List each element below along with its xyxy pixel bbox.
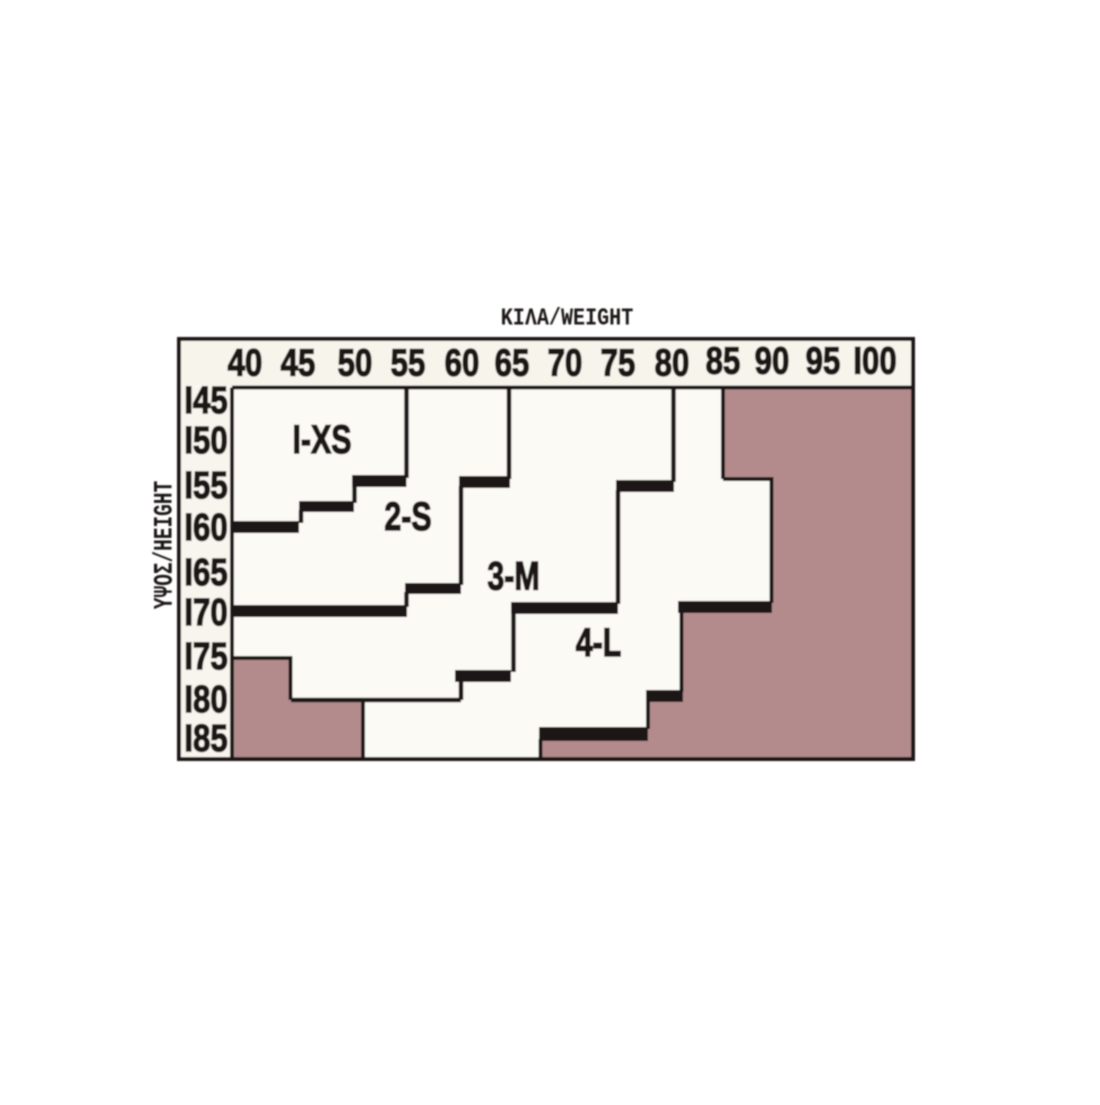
svg-text:3-M: 3-M [487, 553, 539, 598]
svg-text:KIΛA/WEIGHT: KIΛA/WEIGHT [501, 304, 634, 332]
svg-text:55: 55 [391, 343, 426, 385]
svg-text:I50: I50 [184, 420, 227, 462]
svg-text:70: 70 [548, 343, 583, 385]
svg-text:I70: I70 [184, 592, 227, 634]
svg-text:75: 75 [601, 343, 636, 385]
svg-text:I75: I75 [184, 636, 227, 678]
svg-text:65: 65 [495, 343, 530, 385]
svg-text:50: 50 [338, 343, 373, 385]
svg-text:95: 95 [806, 341, 841, 383]
svg-text:40: 40 [228, 343, 263, 385]
svg-text:60: 60 [445, 343, 480, 385]
svg-text:45: 45 [281, 343, 316, 385]
svg-text:90: 90 [755, 341, 790, 383]
svg-text:I55: I55 [184, 465, 227, 507]
svg-text:I85: I85 [184, 718, 227, 760]
svg-text:I00: I00 [853, 341, 896, 383]
svg-text:85: 85 [706, 341, 741, 383]
svg-text:ΥΨΟΣ/HEIGHT: ΥΨΟΣ/HEIGHT [150, 481, 181, 609]
svg-text:4-L: 4-L [576, 620, 622, 665]
svg-text:I-XS: I-XS [292, 417, 351, 462]
svg-text:I45: I45 [184, 380, 227, 422]
svg-text:80: 80 [655, 343, 690, 385]
svg-text:I65: I65 [184, 552, 227, 594]
svg-text:I80: I80 [184, 679, 227, 721]
svg-text:2-S: 2-S [384, 494, 431, 539]
svg-text:I60: I60 [184, 507, 227, 549]
